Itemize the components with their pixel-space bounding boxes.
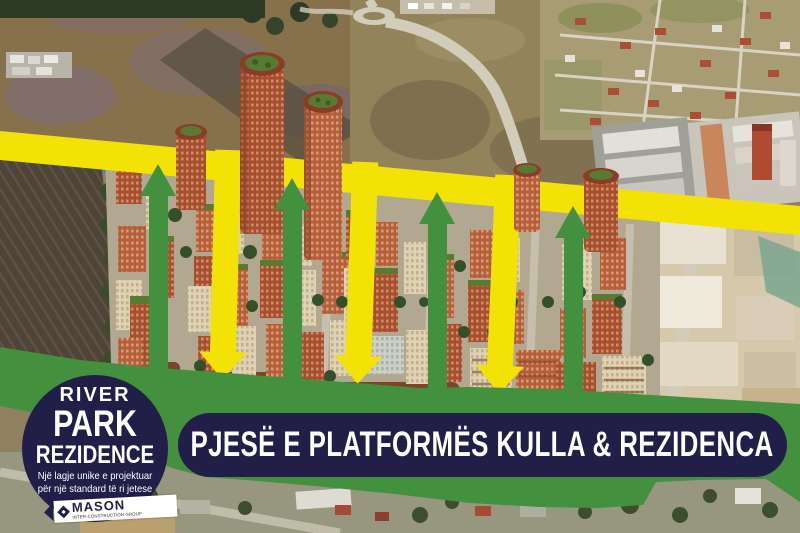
tower — [303, 91, 343, 260]
platform-banner: PJESË E PLATFORMËS KULLA & REZIDENCA — [178, 413, 787, 477]
badge-line-rezidence: REZIDENCE — [35, 441, 155, 470]
poster: PJESË E PLATFORMËS KULLA & REZIDENCA RIV… — [0, 0, 800, 533]
tower — [175, 124, 207, 210]
mason-shield-icon — [57, 505, 70, 518]
platform-banner-title: PJESË E PLATFORMËS KULLA & REZIDENCA — [191, 425, 774, 465]
mason-wing-icon — [44, 503, 54, 521]
badge-tagline-line2: për një standard të ri jetese — [29, 483, 160, 495]
badge-tagline-line1: Një lagje unike e projektuar — [29, 470, 160, 482]
badge-line-park: PARK — [35, 403, 155, 445]
tower — [583, 168, 619, 252]
tower — [513, 163, 541, 232]
mason-logo-name: MASON — [72, 496, 169, 514]
